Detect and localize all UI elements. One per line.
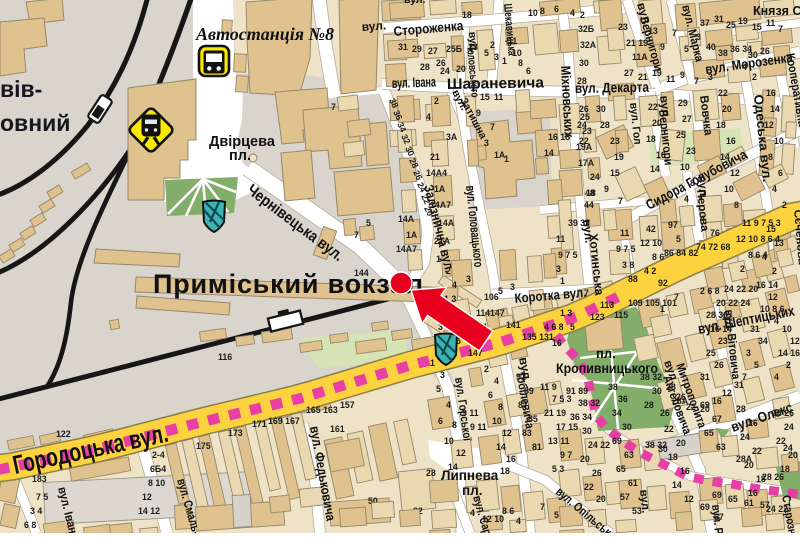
svg-text:4: 4 (494, 376, 499, 386)
svg-text:38: 38 (608, 382, 618, 392)
svg-text:21 19: 21 19 (544, 408, 566, 418)
svg-text:22: 22 (718, 88, 728, 98)
svg-text:16 14: 16 14 (710, 324, 732, 334)
svg-text:5: 5 (676, 234, 681, 244)
svg-text:22: 22 (776, 436, 786, 446)
svg-text:38: 38 (718, 48, 728, 58)
svg-text:5: 5 (754, 360, 759, 370)
svg-text:4: 4 (516, 516, 521, 526)
svg-text:3: 3 (440, 370, 445, 380)
svg-text:34: 34 (758, 336, 768, 346)
svg-text:8: 8 (452, 420, 457, 430)
svg-text:141: 141 (506, 320, 521, 330)
svg-text:34: 34 (612, 408, 622, 418)
svg-text:Приміський вокзал: Приміський вокзал (153, 269, 424, 299)
svg-text:2: 2 (740, 264, 745, 274)
svg-text:28: 28 (644, 400, 654, 410)
svg-text:4: 4 (774, 316, 779, 326)
svg-text:1: 1 (436, 254, 441, 264)
svg-text:92: 92 (658, 278, 668, 288)
svg-text:20: 20 (652, 118, 662, 128)
svg-text:74 72 68: 74 72 68 (696, 242, 730, 252)
svg-text:2: 2 (434, 96, 439, 106)
svg-text:6 8: 6 8 (24, 520, 36, 530)
svg-text:25: 25 (726, 20, 736, 30)
svg-text:3 4: 3 4 (30, 506, 42, 516)
svg-text:61: 61 (628, 478, 638, 488)
svg-text:2: 2 (772, 266, 777, 276)
svg-text:16 14: 16 14 (756, 280, 778, 290)
svg-text:24 22: 24 22 (588, 440, 610, 450)
svg-text:12: 12 (730, 168, 740, 178)
svg-text:4: 4 (452, 280, 457, 290)
svg-text:6: 6 (438, 416, 443, 426)
svg-text:12 10: 12 10 (482, 514, 504, 524)
svg-text:16: 16 (552, 338, 562, 348)
svg-text:3: 3 (494, 52, 499, 62)
svg-text:3А: 3А (446, 132, 458, 142)
svg-text:4: 4 (446, 400, 451, 410)
svg-text:2-4: 2-4 (152, 450, 165, 460)
svg-text:7: 7 (490, 122, 495, 132)
svg-text:106: 106 (484, 292, 499, 302)
svg-text:22: 22 (584, 482, 594, 492)
svg-text:4: 4 (742, 62, 747, 72)
svg-text:30: 30 (582, 426, 592, 436)
svg-text:23: 23 (718, 336, 728, 346)
svg-text:7: 7 (742, 372, 747, 382)
svg-text:28: 28 (420, 62, 430, 72)
svg-text:4: 4 (426, 112, 431, 122)
svg-text:157: 157 (340, 400, 355, 410)
svg-text:6: 6 (488, 390, 493, 400)
svg-text:12: 12 (722, 388, 732, 398)
svg-text:Автостанція №8: Автостанція №8 (195, 24, 334, 44)
svg-text:8 6: 8 6 (652, 252, 664, 262)
svg-text:17А: 17А (578, 158, 595, 168)
svg-text:29: 29 (678, 98, 688, 108)
svg-text:4: 4 (774, 372, 779, 382)
svg-text:3: 3 (510, 282, 515, 292)
svg-text:21: 21 (430, 152, 440, 162)
svg-text:113: 113 (600, 300, 614, 310)
svg-text:29: 29 (412, 44, 422, 54)
svg-text:5: 5 (570, 322, 575, 332)
svg-text:1: 1 (430, 358, 435, 368)
svg-text:31: 31 (398, 42, 408, 52)
svg-text:4 6 8: 4 6 8 (544, 322, 564, 332)
svg-text:10: 10 (774, 136, 784, 146)
svg-text:28: 28 (666, 382, 676, 392)
svg-text:9 11: 9 11 (470, 422, 487, 432)
svg-text:10: 10 (492, 416, 502, 426)
svg-text:7: 7 (778, 24, 783, 34)
svg-text:3: 3 (708, 72, 713, 82)
svg-text:14 16: 14 16 (778, 348, 800, 358)
svg-text:4: 4 (470, 508, 475, 518)
svg-text:вів-: вів- (0, 76, 42, 102)
svg-text:10: 10 (782, 324, 792, 334)
svg-text:5: 5 (554, 510, 559, 520)
svg-text:18: 18 (716, 120, 726, 130)
svg-text:12: 12 (790, 336, 800, 346)
svg-text:3: 3 (466, 274, 471, 284)
svg-text:69: 69 (712, 490, 722, 500)
svg-text:24 22 20: 24 22 20 (724, 284, 758, 294)
svg-text:91: 91 (516, 372, 526, 382)
svg-text:28: 28 (600, 120, 610, 130)
svg-text:20: 20 (676, 438, 686, 448)
svg-text:36: 36 (618, 394, 628, 404)
svg-text:114: 114 (476, 308, 490, 318)
svg-text:7: 7 (618, 196, 623, 206)
svg-text:26: 26 (760, 46, 770, 56)
svg-text:169 167: 169 167 (268, 416, 300, 426)
svg-text:16: 16 (680, 466, 690, 476)
svg-text:10: 10 (512, 48, 522, 58)
svg-text:26: 26 (592, 468, 602, 478)
svg-text:пл.: пл. (462, 483, 482, 498)
svg-text:25Б: 25Б (446, 44, 463, 54)
svg-text:14А: 14А (398, 214, 415, 224)
svg-text:19: 19 (738, 16, 748, 26)
svg-text:30: 30 (748, 50, 758, 60)
svg-text:20: 20 (744, 460, 754, 470)
svg-text:76: 76 (710, 228, 720, 238)
svg-text:28 26: 28 26 (772, 408, 794, 418)
svg-text:8: 8 (540, 6, 545, 16)
svg-text:28: 28 (426, 468, 436, 478)
svg-text:135 131: 135 131 (522, 332, 554, 342)
svg-text:13 11: 13 11 (548, 436, 570, 446)
svg-text:24 22: 24 22 (766, 504, 788, 514)
svg-text:9: 9 (476, 108, 481, 118)
svg-text:30: 30 (596, 104, 606, 114)
svg-text:86 84 82: 86 84 82 (664, 248, 698, 258)
svg-text:вул.: вул. (361, 18, 386, 34)
svg-text:18: 18 (462, 10, 472, 20)
svg-text:44: 44 (584, 200, 594, 210)
svg-text:вул.: вул. (404, 0, 426, 6)
svg-text:89: 89 (524, 386, 534, 396)
svg-text:20: 20 (596, 494, 606, 504)
svg-text:9: 9 (680, 70, 685, 80)
svg-text:6: 6 (554, 4, 559, 14)
svg-text:88: 88 (628, 274, 638, 284)
svg-text:38 32: 38 32 (578, 398, 600, 408)
svg-text:3: 3 (484, 138, 489, 148)
svg-text:40: 40 (706, 42, 716, 52)
svg-text:23: 23 (618, 22, 628, 32)
svg-text:2: 2 (580, 10, 585, 20)
svg-text:7: 7 (354, 230, 359, 240)
svg-text:87: 87 (518, 400, 528, 410)
svg-text:67: 67 (714, 512, 724, 522)
svg-text:20: 20 (456, 64, 466, 74)
svg-text:18: 18 (500, 466, 510, 476)
svg-text:16: 16 (712, 396, 722, 406)
svg-text:7: 7 (584, 288, 589, 298)
svg-text:18: 18 (646, 134, 656, 144)
svg-text:8: 8 (690, 178, 695, 188)
svg-text:31: 31 (700, 372, 710, 382)
svg-text:2: 2 (752, 72, 757, 82)
svg-text:18: 18 (668, 452, 678, 462)
svg-text:69: 69 (612, 436, 622, 446)
svg-text:16 18: 16 18 (548, 132, 570, 142)
svg-text:24: 24 (740, 432, 750, 442)
svg-text:116: 116 (218, 352, 232, 362)
svg-text:12: 12 (142, 492, 152, 502)
svg-text:11: 11 (508, 36, 517, 46)
svg-text:63: 63 (624, 450, 634, 460)
svg-text:28: 28 (577, 76, 587, 86)
svg-text:14: 14 (770, 104, 780, 114)
svg-text:20 22 24: 20 22 24 (716, 298, 750, 308)
svg-text:1А: 1А (406, 230, 418, 240)
svg-text:1: 1 (660, 304, 665, 314)
svg-text:25: 25 (676, 130, 686, 140)
svg-text:2 6 8: 2 6 8 (700, 286, 720, 296)
svg-text:19: 19 (614, 152, 624, 162)
svg-text:27: 27 (428, 46, 438, 56)
svg-text:12: 12 (722, 312, 732, 322)
svg-text:31: 31 (750, 324, 760, 334)
svg-text:4: 4 (570, 8, 575, 18)
svg-text:115: 115 (614, 310, 628, 320)
svg-text:4: 4 (772, 184, 777, 194)
svg-text:15: 15 (610, 168, 620, 178)
svg-text:вул. Івана: вул. Івана (392, 73, 437, 91)
svg-text:5: 5 (366, 218, 371, 228)
svg-text:10: 10 (444, 436, 454, 446)
svg-text:5: 5 (436, 384, 441, 394)
svg-text:6: 6 (778, 168, 783, 178)
svg-text:26: 26 (714, 360, 724, 370)
svg-text:11: 11 (766, 18, 775, 28)
svg-text:183: 183 (32, 474, 47, 484)
svg-text:161: 161 (330, 424, 345, 434)
svg-text:12: 12 (768, 292, 778, 302)
svg-text:32Б: 32Б (578, 24, 595, 34)
svg-text:2: 2 (786, 360, 791, 370)
svg-text:4 2: 4 2 (644, 266, 656, 276)
svg-text:12: 12 (502, 428, 512, 438)
svg-text:14: 14 (544, 148, 554, 158)
svg-text:9 7 5: 9 7 5 (616, 244, 636, 254)
svg-text:16: 16 (506, 454, 516, 464)
svg-text:5: 5 (498, 286, 503, 296)
svg-text:15: 15 (766, 224, 776, 234)
svg-text:4: 4 (700, 214, 705, 224)
svg-text:4: 4 (762, 252, 767, 262)
svg-text:109 105 101: 109 105 101 (628, 298, 677, 308)
svg-text:8: 8 (498, 402, 503, 412)
svg-text:9 7 5: 9 7 5 (558, 250, 578, 260)
svg-text:3: 3 (556, 264, 561, 274)
svg-text:37: 37 (700, 18, 710, 28)
svg-text:14: 14 (672, 480, 682, 490)
svg-text:21 19: 21 19 (626, 38, 648, 48)
svg-text:18: 18 (780, 464, 790, 474)
svg-text:3: 3 (696, 32, 701, 42)
svg-text:23: 23 (468, 42, 478, 52)
svg-text:57: 57 (620, 492, 630, 502)
svg-text:69: 69 (700, 400, 710, 410)
svg-text:5 3: 5 3 (552, 464, 564, 474)
svg-text:1: 1 (504, 154, 509, 164)
svg-text:8 6: 8 6 (502, 506, 514, 516)
svg-text:81: 81 (532, 442, 542, 452)
svg-text:5: 5 (484, 48, 489, 58)
svg-text:2: 2 (782, 200, 787, 210)
svg-text:5: 5 (684, 44, 689, 54)
svg-text:27: 27 (624, 68, 634, 78)
svg-text:147: 147 (490, 308, 505, 318)
svg-text:10: 10 (724, 184, 734, 194)
svg-text:171: 171 (252, 419, 267, 429)
svg-text:67: 67 (712, 414, 722, 424)
svg-text:65: 65 (616, 464, 626, 474)
svg-text:28А: 28А (672, 396, 689, 406)
svg-text:53: 53 (632, 506, 642, 516)
svg-text:7 5: 7 5 (36, 492, 48, 502)
svg-text:22: 22 (752, 446, 762, 456)
svg-text:14 12: 14 12 (138, 506, 160, 516)
svg-text:20: 20 (580, 454, 590, 464)
svg-text:15: 15 (480, 92, 490, 102)
svg-text:61: 61 (744, 498, 754, 508)
svg-text:10: 10 (680, 162, 690, 172)
svg-text:36 34: 36 34 (570, 412, 592, 422)
svg-text:8 10: 8 10 (148, 478, 165, 488)
svg-text:28: 28 (736, 404, 746, 414)
svg-text:11: 11 (494, 92, 503, 102)
svg-text:1А: 1А (434, 184, 446, 194)
svg-text:16: 16 (726, 136, 736, 146)
svg-text:173: 173 (228, 428, 243, 438)
svg-text:32А: 32А (580, 40, 597, 50)
svg-text:39 37: 39 37 (568, 218, 590, 228)
svg-text:6Б4: 6Б4 (150, 464, 166, 474)
svg-text:13: 13 (774, 238, 784, 248)
svg-text:15: 15 (752, 22, 762, 32)
svg-text:12: 12 (764, 120, 774, 130)
svg-text:8: 8 (768, 152, 773, 162)
svg-text:175: 175 (196, 441, 211, 451)
svg-text:14: 14 (650, 164, 660, 174)
svg-text:16: 16 (748, 488, 758, 498)
svg-text:7: 7 (331, 102, 336, 112)
svg-text:9 11: 9 11 (462, 408, 479, 418)
svg-text:165 163: 165 163 (306, 405, 338, 415)
svg-text:27: 27 (682, 114, 692, 124)
svg-text:144: 144 (354, 268, 369, 278)
svg-text:19: 19 (652, 68, 662, 78)
svg-text:21А: 21А (434, 236, 451, 246)
svg-text:31: 31 (714, 14, 724, 24)
svg-text:8: 8 (518, 58, 523, 68)
svg-text:23: 23 (686, 146, 696, 156)
svg-text:1 3: 1 3 (560, 308, 572, 318)
svg-text:7: 7 (694, 76, 699, 86)
svg-text:63: 63 (716, 442, 726, 452)
svg-text:85: 85 (528, 414, 538, 424)
svg-text:23: 23 (610, 136, 620, 146)
svg-text:19А: 19А (576, 142, 593, 152)
svg-text:Князя С: Князя С (753, 4, 800, 18)
svg-text:69: 69 (700, 502, 710, 512)
svg-text:пл.: пл. (229, 148, 251, 164)
svg-text:14А: 14А (438, 218, 455, 228)
svg-text:11: 11 (666, 74, 675, 84)
svg-text:14: 14 (720, 152, 730, 162)
svg-text:123: 123 (590, 312, 605, 322)
svg-text:7: 7 (672, 28, 677, 38)
svg-text:3: 3 (746, 348, 751, 358)
svg-text:24: 24 (440, 66, 450, 76)
svg-text:14А7: 14А7 (396, 244, 417, 254)
svg-text:25: 25 (706, 348, 716, 358)
svg-text:1: 1 (502, 56, 507, 66)
svg-text:овний: овний (0, 110, 70, 136)
svg-text:7: 7 (674, 292, 679, 302)
svg-text:65: 65 (704, 428, 714, 438)
svg-text:пл.: пл. (596, 346, 616, 361)
svg-text:9 7: 9 7 (560, 450, 572, 460)
svg-text:16: 16 (656, 150, 666, 160)
svg-text:3 8: 3 8 (622, 260, 634, 270)
svg-text:12: 12 (684, 494, 694, 504)
svg-text:18: 18 (586, 188, 596, 198)
svg-text:1: 1 (560, 276, 565, 286)
svg-text:16: 16 (766, 88, 776, 98)
svg-text:38 32: 38 32 (640, 372, 662, 382)
svg-text:8: 8 (734, 200, 739, 210)
svg-text:11: 11 (620, 228, 629, 238)
svg-text:12 10: 12 10 (640, 238, 662, 248)
svg-text:10: 10 (528, 8, 538, 18)
svg-text:26: 26 (660, 408, 670, 418)
svg-text:83: 83 (522, 428, 532, 438)
svg-text:14: 14 (448, 462, 458, 472)
svg-text:17 15: 17 15 (556, 422, 578, 432)
svg-text:22: 22 (664, 424, 674, 434)
svg-text:21: 21 (638, 72, 648, 82)
svg-text:26: 26 (748, 418, 758, 428)
svg-text:24: 24 (784, 422, 794, 432)
svg-text:20: 20 (788, 450, 798, 460)
svg-text:30: 30 (658, 444, 668, 454)
svg-text:25: 25 (580, 112, 590, 122)
svg-text:10 8 6: 10 8 6 (760, 304, 785, 314)
svg-text:11: 11 (556, 234, 565, 244)
svg-text:91 89: 91 89 (566, 386, 588, 396)
svg-text:9: 9 (604, 184, 609, 194)
svg-text:22: 22 (648, 102, 658, 112)
svg-text:42: 42 (646, 224, 656, 234)
svg-text:14А4: 14А4 (426, 168, 447, 178)
svg-text:30: 30 (622, 422, 632, 432)
svg-text:14А7: 14А7 (430, 200, 451, 210)
svg-text:6: 6 (526, 66, 531, 76)
svg-text:24: 24 (590, 172, 600, 182)
svg-text:2: 2 (484, 364, 489, 374)
svg-text:11А: 11А (632, 52, 648, 62)
svg-text:2: 2 (446, 266, 451, 276)
svg-text:65: 65 (728, 494, 738, 504)
svg-text:30: 30 (579, 58, 589, 68)
